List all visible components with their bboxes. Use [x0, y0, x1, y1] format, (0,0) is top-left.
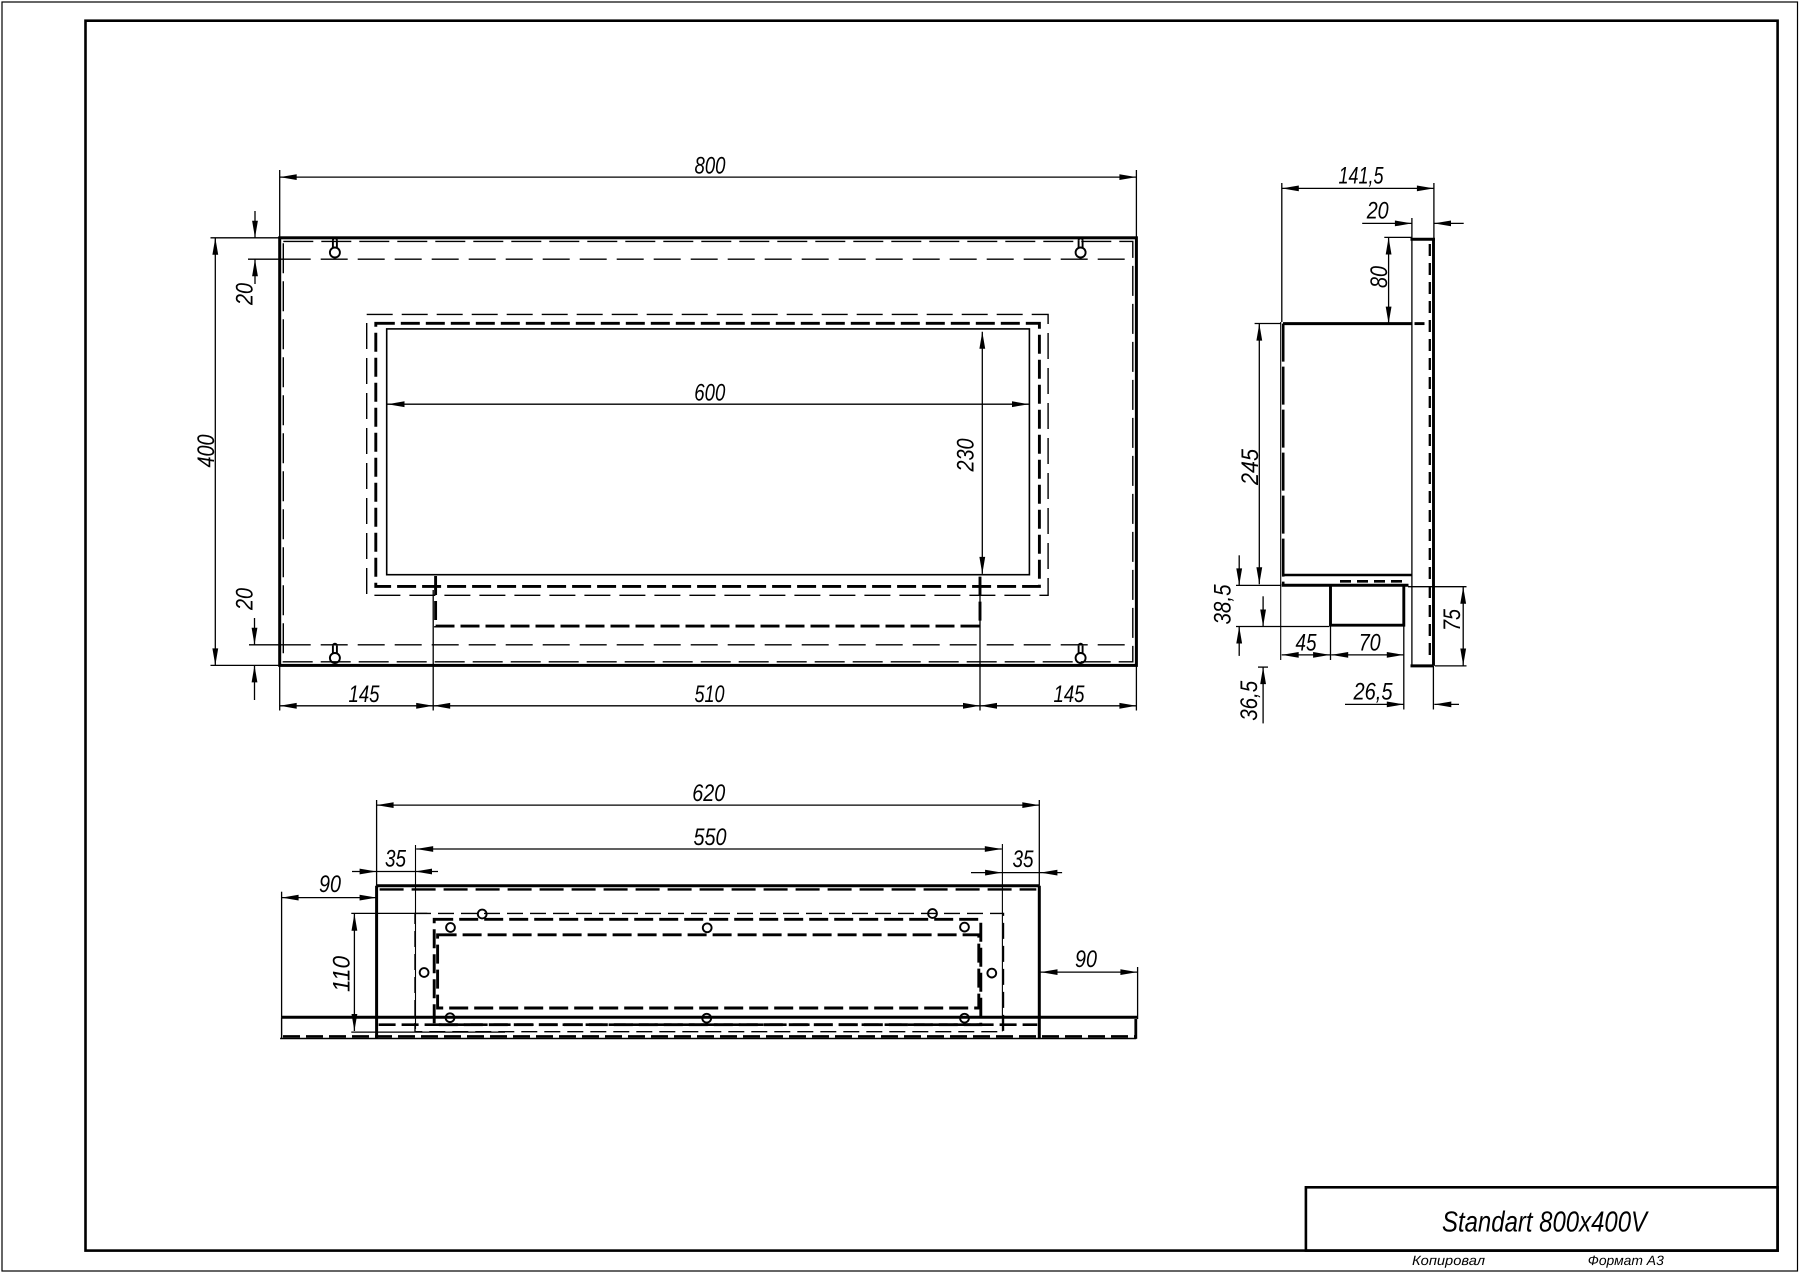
svg-text:38,5: 38,5: [1210, 584, 1237, 625]
svg-text:Формат А3: Формат А3: [1588, 1253, 1664, 1268]
svg-text:245: 245: [1237, 448, 1264, 485]
svg-text:26,5: 26,5: [1353, 679, 1393, 706]
svg-text:510: 510: [695, 681, 725, 708]
svg-text:800: 800: [695, 153, 727, 180]
svg-text:36,5: 36,5: [1236, 680, 1263, 721]
svg-text:20: 20: [1366, 197, 1389, 224]
svg-text:Копировал: Копировал: [1412, 1253, 1485, 1268]
svg-text:80: 80: [1366, 265, 1393, 288]
svg-text:35: 35: [1013, 846, 1035, 873]
svg-text:Standart 800x400V: Standart 800x400V: [1442, 1207, 1649, 1239]
svg-text:620: 620: [692, 780, 726, 807]
svg-text:145: 145: [349, 681, 381, 708]
svg-text:400: 400: [193, 434, 220, 468]
svg-text:550: 550: [694, 824, 728, 851]
svg-text:20: 20: [232, 282, 259, 305]
svg-text:141,5: 141,5: [1339, 162, 1384, 189]
svg-text:75: 75: [1439, 608, 1466, 631]
svg-text:20: 20: [232, 587, 259, 610]
svg-text:90: 90: [319, 871, 342, 898]
svg-text:145: 145: [1054, 681, 1086, 708]
svg-text:230: 230: [953, 438, 980, 472]
svg-text:90: 90: [1075, 946, 1098, 973]
svg-text:600: 600: [694, 379, 726, 406]
svg-text:110: 110: [329, 955, 356, 992]
svg-text:70: 70: [1359, 629, 1382, 656]
svg-text:45: 45: [1296, 629, 1318, 656]
svg-text:35: 35: [385, 845, 407, 872]
